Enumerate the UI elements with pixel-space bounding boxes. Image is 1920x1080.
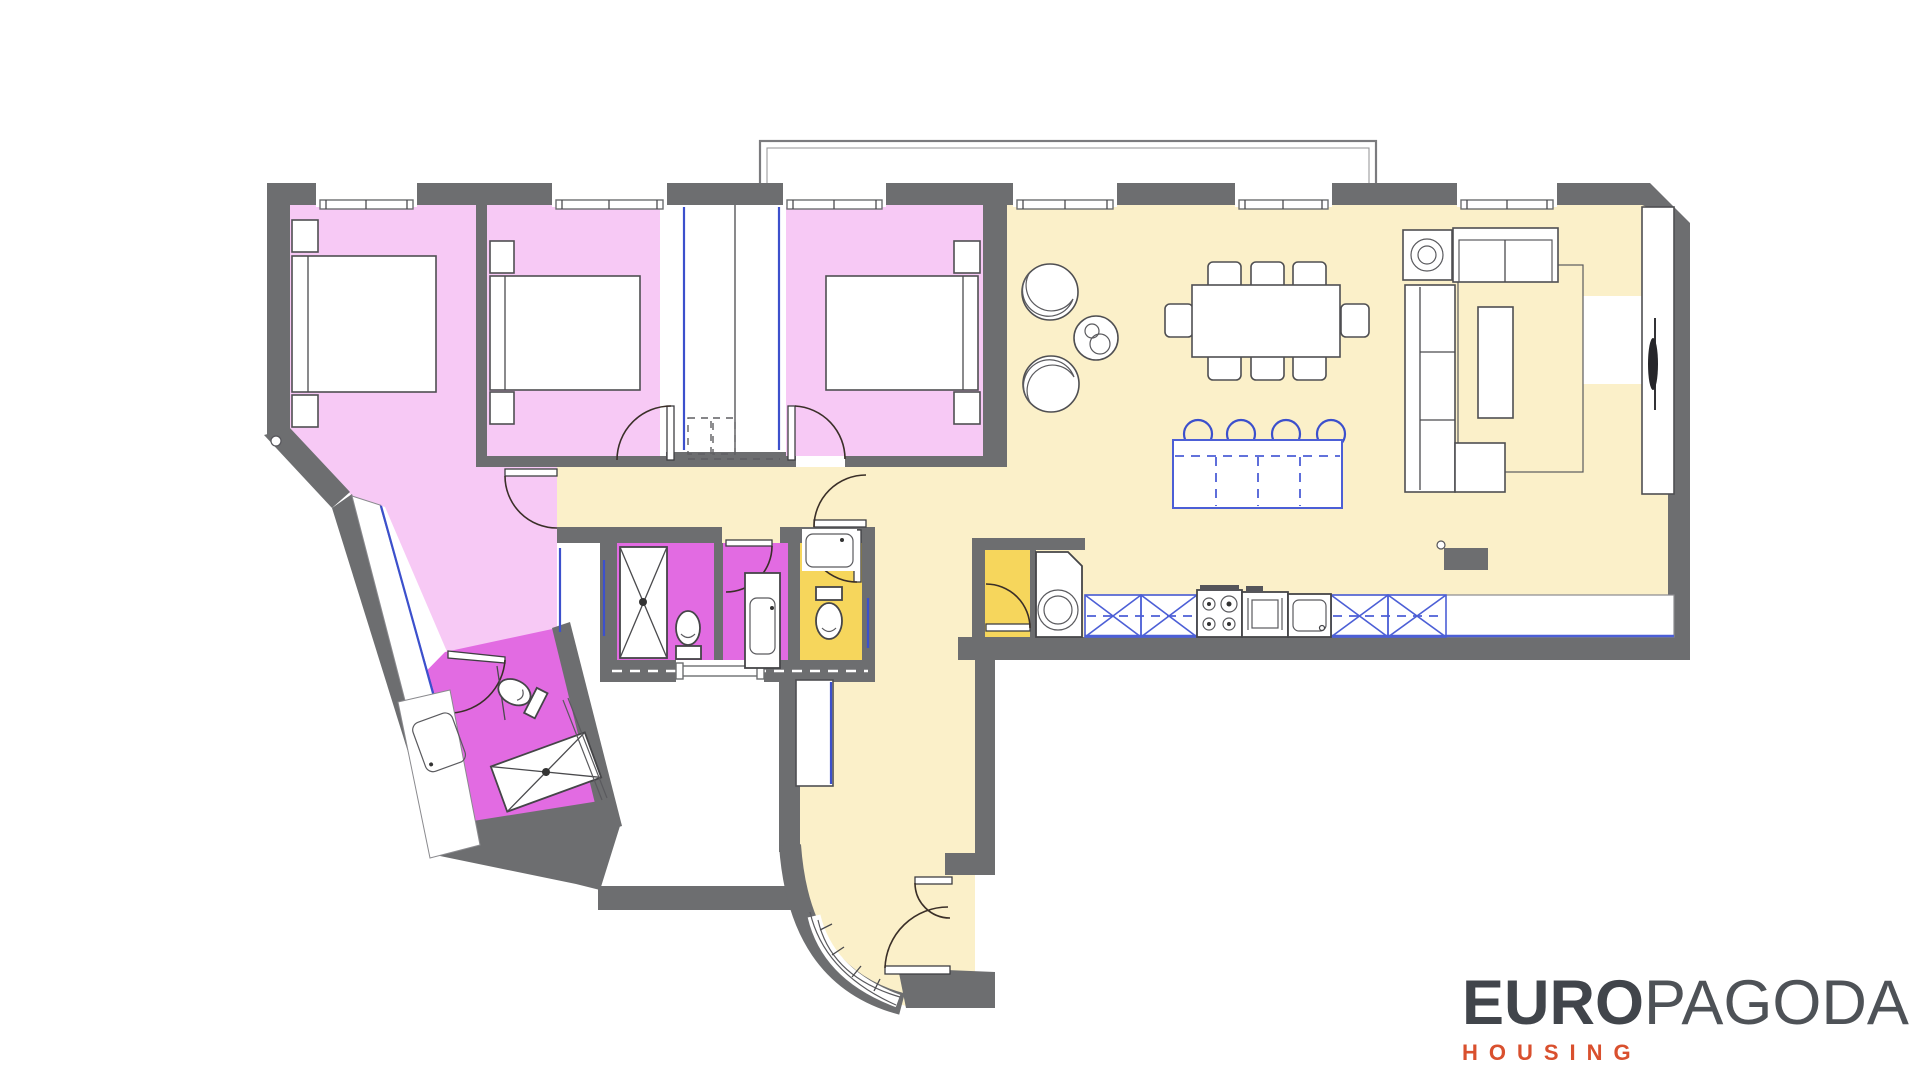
bed — [490, 276, 640, 390]
armchair — [1022, 264, 1078, 320]
window — [1013, 183, 1117, 209]
wall-left — [267, 183, 290, 435]
wall-bath-top-a — [557, 527, 722, 543]
tv-screen — [1648, 338, 1658, 390]
dining-table — [1192, 285, 1340, 357]
sink — [1288, 594, 1331, 637]
brand-logo: EUROPAGODA HOUSING — [1462, 972, 1909, 1064]
bed — [826, 276, 978, 390]
laundry — [1036, 552, 1082, 637]
chair — [1165, 304, 1193, 337]
wall-bed3-right — [983, 205, 1007, 457]
window — [552, 183, 667, 209]
chair — [1341, 304, 1369, 337]
logo-pagoda: PAGODA — [1644, 968, 1909, 1038]
wall-bed2-bottom — [476, 456, 666, 467]
wall-bed1-bed2 — [476, 205, 487, 467]
wc-basin — [802, 529, 857, 571]
window — [316, 183, 417, 209]
nightstand — [954, 392, 980, 424]
wall-bed3-bottom-b — [845, 456, 1007, 467]
coffee-table — [1478, 307, 1513, 418]
floor-plan-page: EUROPAGODA HOUSING — [0, 0, 1920, 1080]
oven — [1242, 586, 1288, 637]
wall-bath-divider-ab — [714, 543, 723, 667]
lamp-table — [1403, 230, 1452, 280]
armchair — [1023, 356, 1079, 412]
wall-patio-bottom — [598, 886, 792, 910]
nightstand — [954, 241, 980, 273]
tv-unit — [1642, 207, 1674, 494]
nightstand — [292, 395, 318, 427]
toilet — [816, 587, 842, 639]
shower-tray — [620, 547, 667, 658]
window — [783, 183, 886, 209]
vanity-basin — [745, 573, 780, 668]
window — [1235, 183, 1332, 209]
wall-corner-post — [271, 436, 281, 446]
logo-tagline: HOUSING — [1462, 1042, 1909, 1064]
nightstand — [490, 241, 514, 273]
nightstand — [490, 392, 514, 424]
side-table — [1074, 316, 1118, 360]
sofa-l — [1405, 285, 1455, 492]
wall-pantry-left — [972, 550, 985, 637]
logo-euro: EURO — [1462, 968, 1644, 1038]
balcony-outline — [760, 141, 1376, 185]
wall-entry-step — [945, 853, 995, 875]
hall-closet — [796, 680, 833, 786]
wall-bath-divider-bwc — [788, 543, 800, 667]
hob — [1197, 585, 1242, 637]
wall-corridor-right — [975, 660, 995, 855]
bed — [292, 256, 436, 392]
logo-wordmark: EUROPAGODA — [1462, 972, 1909, 1035]
toilet — [676, 611, 701, 659]
sofa-corner — [1455, 443, 1505, 492]
nightstand — [292, 220, 318, 252]
wall-living-bottom — [958, 637, 1690, 660]
window — [1457, 183, 1557, 209]
wall-pantry-top — [972, 538, 1085, 550]
floor-plan-drawing — [0, 0, 1920, 1080]
